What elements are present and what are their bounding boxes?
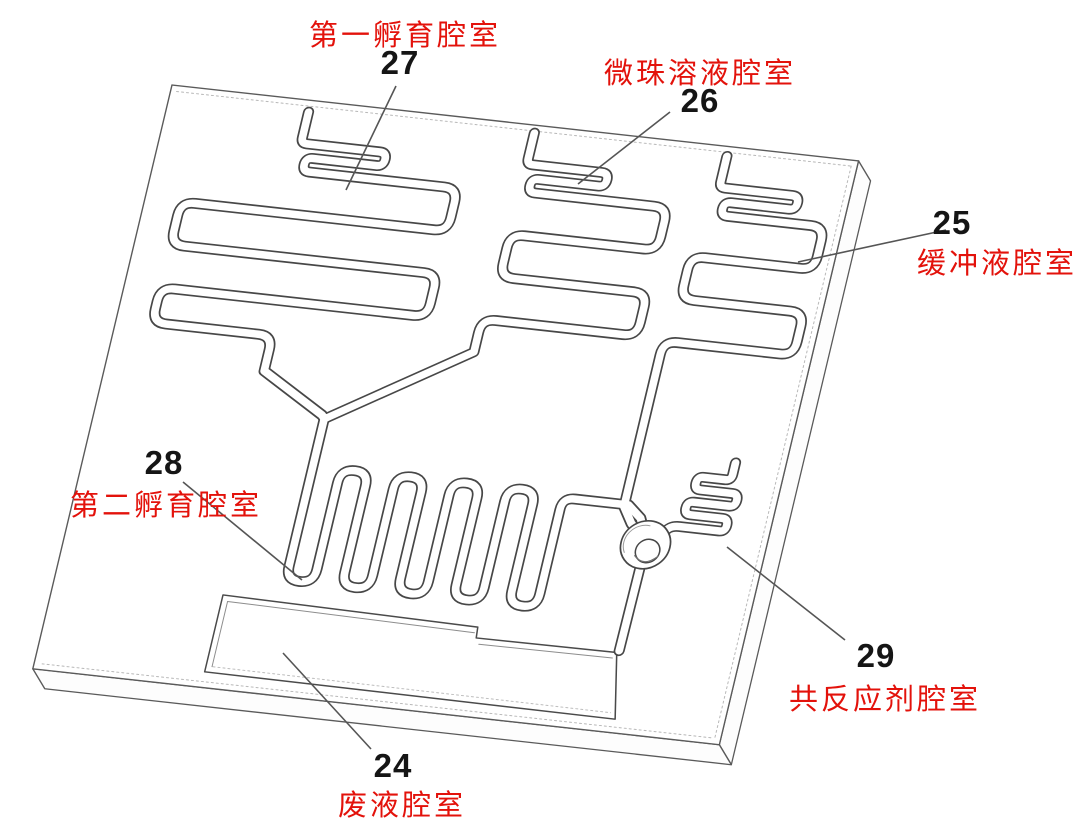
callout-number-28: 28 [145, 444, 184, 482]
callout-number-24: 24 [374, 747, 413, 785]
label-buffer-chamber: 缓冲液腔室 [917, 240, 1077, 282]
label-second-incubation-chamber: 第二孵育腔室 [70, 482, 262, 524]
label-waste-chamber: 废液腔室 [338, 782, 466, 824]
callout-number-26: 26 [681, 82, 720, 120]
label-coreactant-chamber: 共反应剂腔室 [789, 676, 981, 718]
callout-number-27: 27 [381, 44, 420, 82]
patent-figure: 第一孵育腔室 27 微珠溶液腔室 26 25 缓冲液腔室 28 第二孵育腔室 2… [0, 0, 1080, 826]
callout-number-25: 25 [933, 204, 972, 242]
callout-number-29: 29 [857, 637, 896, 675]
